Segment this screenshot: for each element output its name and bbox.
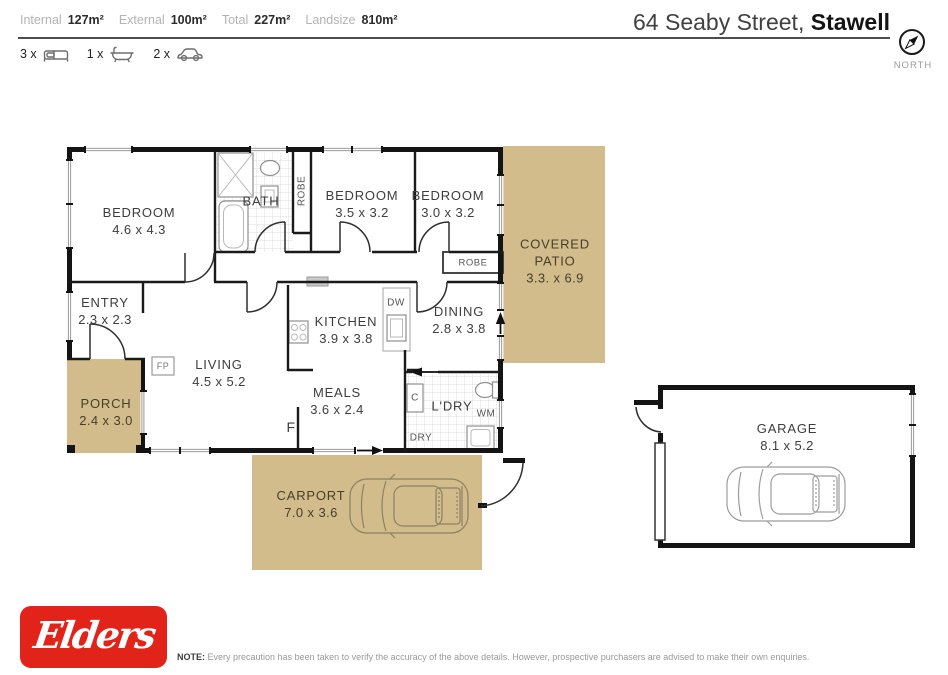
room-name: KITCHEN [315, 313, 378, 330]
room-name: BATH [243, 193, 280, 210]
room-dims: 7.0 x 3.6 [277, 504, 346, 521]
cupboard-label: C [411, 393, 419, 404]
garage-side-door [655, 443, 665, 540]
washing-machine-label: WM [477, 409, 496, 420]
room-name: BEDROOM [103, 204, 176, 221]
room-label-carport: CARPORT 7.0 x 3.6 [277, 487, 346, 521]
room-label-living: LIVING 4.5 x 5.2 [192, 356, 245, 390]
room-name: ENTRY [78, 294, 131, 311]
note-text: Every precaution has been taken to verif… [208, 652, 810, 662]
room-name: PATIO [520, 253, 590, 270]
laundry-toilet-icon [476, 383, 495, 398]
room-label-entry: ENTRY 2.3 x 2.3 [78, 294, 131, 328]
room-name: DINING [432, 303, 485, 320]
room-dims: 3.9 x 3.8 [315, 330, 378, 347]
toilet-icon [261, 161, 280, 176]
robe-label: ROBE [297, 176, 308, 206]
room-dims: 4.5 x 5.2 [192, 373, 245, 390]
floorplan-page: Internal 127m² External 100m² Total 227m… [0, 0, 948, 675]
room-name: L'DRY [432, 398, 473, 415]
room-name: CARPORT [277, 487, 346, 504]
room-dims: 3.5 x 3.2 [326, 204, 399, 221]
elders-logo-text: Elders [30, 613, 157, 661]
room-dims: 3.3. x 6.9 [520, 270, 590, 287]
dishwasher-label: DW [387, 298, 405, 309]
room-label-bedroom2: BEDROOM 3.5 x 3.2 [326, 187, 399, 221]
room-name: COVERED [520, 236, 590, 253]
room-label-bedroom1: BEDROOM 4.6 x 4.3 [103, 204, 176, 238]
disclaimer-note: NOTE: Every precaution has been taken to… [177, 652, 947, 662]
room-label-laundry: L'DRY [432, 398, 473, 415]
room-dims: 2.8 x 3.8 [432, 320, 485, 337]
room-dims: 3.6 x 2.4 [310, 401, 363, 418]
room-dims: 2.4 x 3.0 [79, 412, 132, 429]
garage-car-icon [727, 462, 845, 526]
room-label-bedroom3: BEDROOM 3.0 x 3.2 [412, 187, 485, 221]
dryer-label: DRY [410, 433, 432, 444]
room-name: LIVING [192, 356, 245, 373]
fridge-label: F [286, 419, 295, 435]
room-label-covered-patio: COVERED PATIO 3.3. x 6.9 [520, 236, 590, 287]
room-label-garage: GARAGE 8.1 x 5.2 [757, 420, 817, 454]
robe-label: ROBE [459, 258, 488, 269]
room-name: BEDROOM [412, 187, 485, 204]
room-dims: 8.1 x 5.2 [757, 437, 817, 454]
fireplace-label: FP [157, 361, 170, 371]
room-label-bath: BATH [243, 193, 280, 210]
room-dims: 4.6 x 4.3 [103, 221, 176, 238]
room-dims: 2.3 x 2.3 [78, 311, 131, 328]
room-label-meals: MEALS 3.6 x 2.4 [310, 384, 363, 418]
room-name: BEDROOM [326, 187, 399, 204]
room-label-kitchen: KITCHEN 3.9 x 3.8 [315, 313, 378, 347]
note-prefix: NOTE: [177, 652, 205, 662]
room-label-dining: DINING 2.8 x 3.8 [432, 303, 485, 337]
room-label-porch: PORCH 2.4 x 3.0 [79, 395, 132, 429]
room-dims: 3.0 x 3.2 [412, 204, 485, 221]
elders-logo: Elders [20, 606, 167, 668]
room-name: PORCH [79, 395, 132, 412]
room-name: MEALS [310, 384, 363, 401]
floorplan-drawing [0, 0, 948, 675]
room-name: GARAGE [757, 420, 817, 437]
